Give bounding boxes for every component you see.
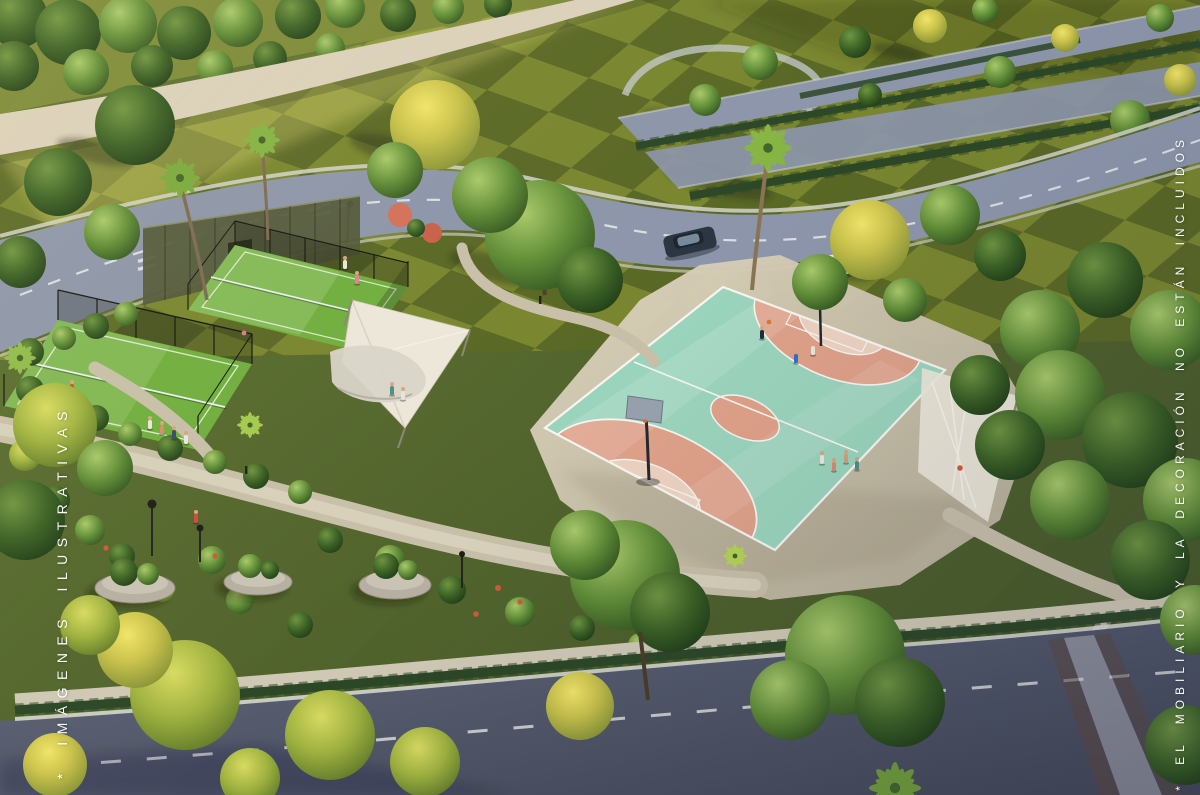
- watermark-left: * IMÁGENES ILUSTRATIVAS: [54, 404, 70, 779]
- watermark-right: * EL MOBILIARIO Y LA DECORACIÓN NO ESTÁN…: [1173, 135, 1187, 791]
- render-scene: [0, 0, 1200, 795]
- aerial-park-render: * IMÁGENES ILUSTRATIVAS * EL MOBILIARIO …: [0, 0, 1200, 795]
